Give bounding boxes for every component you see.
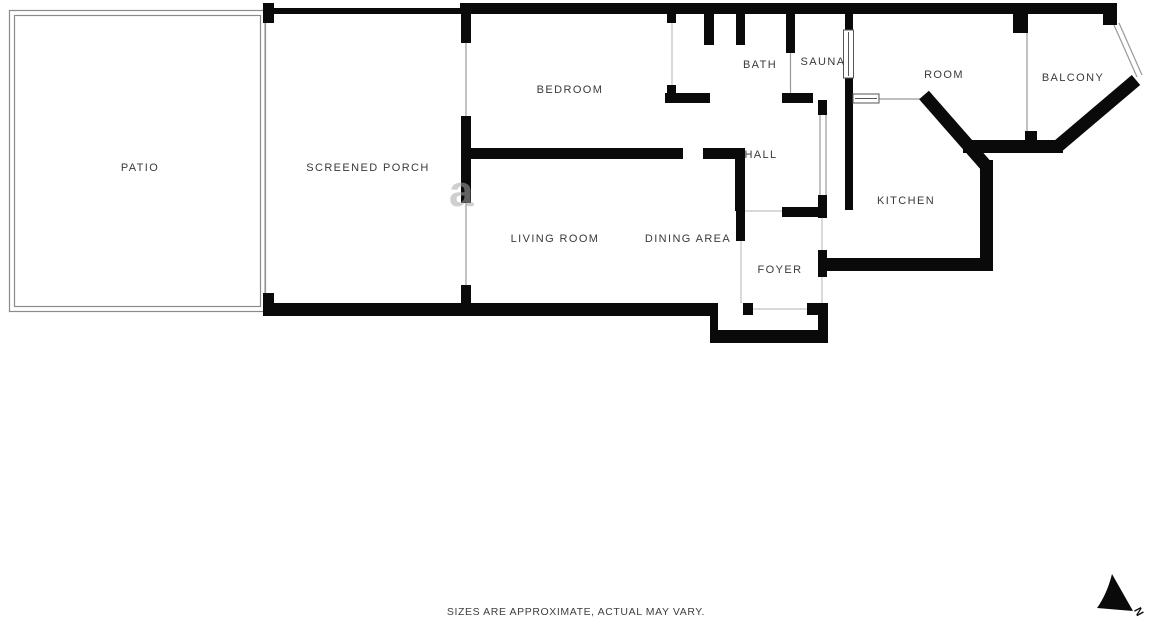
room-label-balcony: BALCONY [1042, 72, 1104, 84]
room-label-bedroom: BEDROOM [537, 84, 604, 96]
wall-sauna-east-top [845, 13, 853, 32]
wall-bedroom-east-stub-top [667, 13, 676, 23]
wall-foyer-west [736, 211, 745, 241]
wall-kitchen-west [845, 77, 853, 210]
patio-border [10, 11, 266, 312]
room-label-screened-porch: SCREENED PORCH [306, 162, 430, 174]
wall-room-kitchen-diagonal [924, 95, 988, 168]
patio-border-inner [15, 16, 261, 307]
north-arrow: N [1097, 574, 1145, 618]
wall-kitchen-east [980, 160, 993, 271]
balcony-window-line-b [1119, 23, 1142, 75]
watermark: a [449, 170, 473, 214]
wall-closet-stub [736, 13, 745, 45]
north-arrow-icon [1097, 574, 1133, 611]
room-label-dining-area: DINING AREA [645, 233, 731, 245]
wall-bath-sauna-divider [786, 13, 795, 53]
wall-porch-top [263, 8, 463, 14]
wall-porch-nw-post [263, 3, 274, 23]
room-label-foyer: FOYER [758, 264, 803, 276]
disclaimer-text: SIZES ARE APPROXIMATE, ACTUAL MAY VARY. [447, 606, 705, 618]
room-label-room: ROOM [924, 69, 964, 81]
wall-balcony-ne-post [1103, 3, 1117, 25]
wall-kitchen-bottom [818, 258, 993, 271]
wall-bath-southwest [665, 93, 710, 103]
wall-bottom-main [263, 303, 718, 316]
wall-hall-east-stub-top [818, 100, 827, 115]
wall-sauna-south [782, 93, 813, 103]
wall-livingroom-top-west [470, 148, 683, 159]
room-label-living-room: LIVING ROOM [511, 233, 600, 245]
balcony-window-line-a [1114, 25, 1137, 77]
patio-border-outer [10, 11, 266, 312]
wall-porch-east-upper [461, 13, 471, 43]
wall-room-balcony-stub-top [1013, 13, 1028, 33]
wall-top-main [460, 3, 1117, 14]
room-label-hall: HALL [744, 149, 777, 161]
wall-porch-east-lower [461, 285, 471, 315]
wall-bath-west [704, 13, 714, 45]
wall-entry-stub-right [807, 303, 818, 315]
north-label: N [1131, 606, 1145, 619]
wall-vestibule-bottom [710, 330, 828, 343]
room-label-sauna: SAUNA [801, 56, 846, 68]
room-label-patio: PATIO [121, 162, 159, 174]
wall-entry-stub-left [743, 303, 753, 315]
room-label-kitchen: KITCHEN [877, 195, 935, 207]
wall-balcony-diagonal [1057, 80, 1136, 147]
floor-plan-page: N a PATIO SCREENED PORCH BEDROOM BATH SA… [0, 0, 1152, 626]
room-label-bath: BATH [743, 59, 777, 71]
wall-hall-foyer-divider [782, 207, 827, 217]
